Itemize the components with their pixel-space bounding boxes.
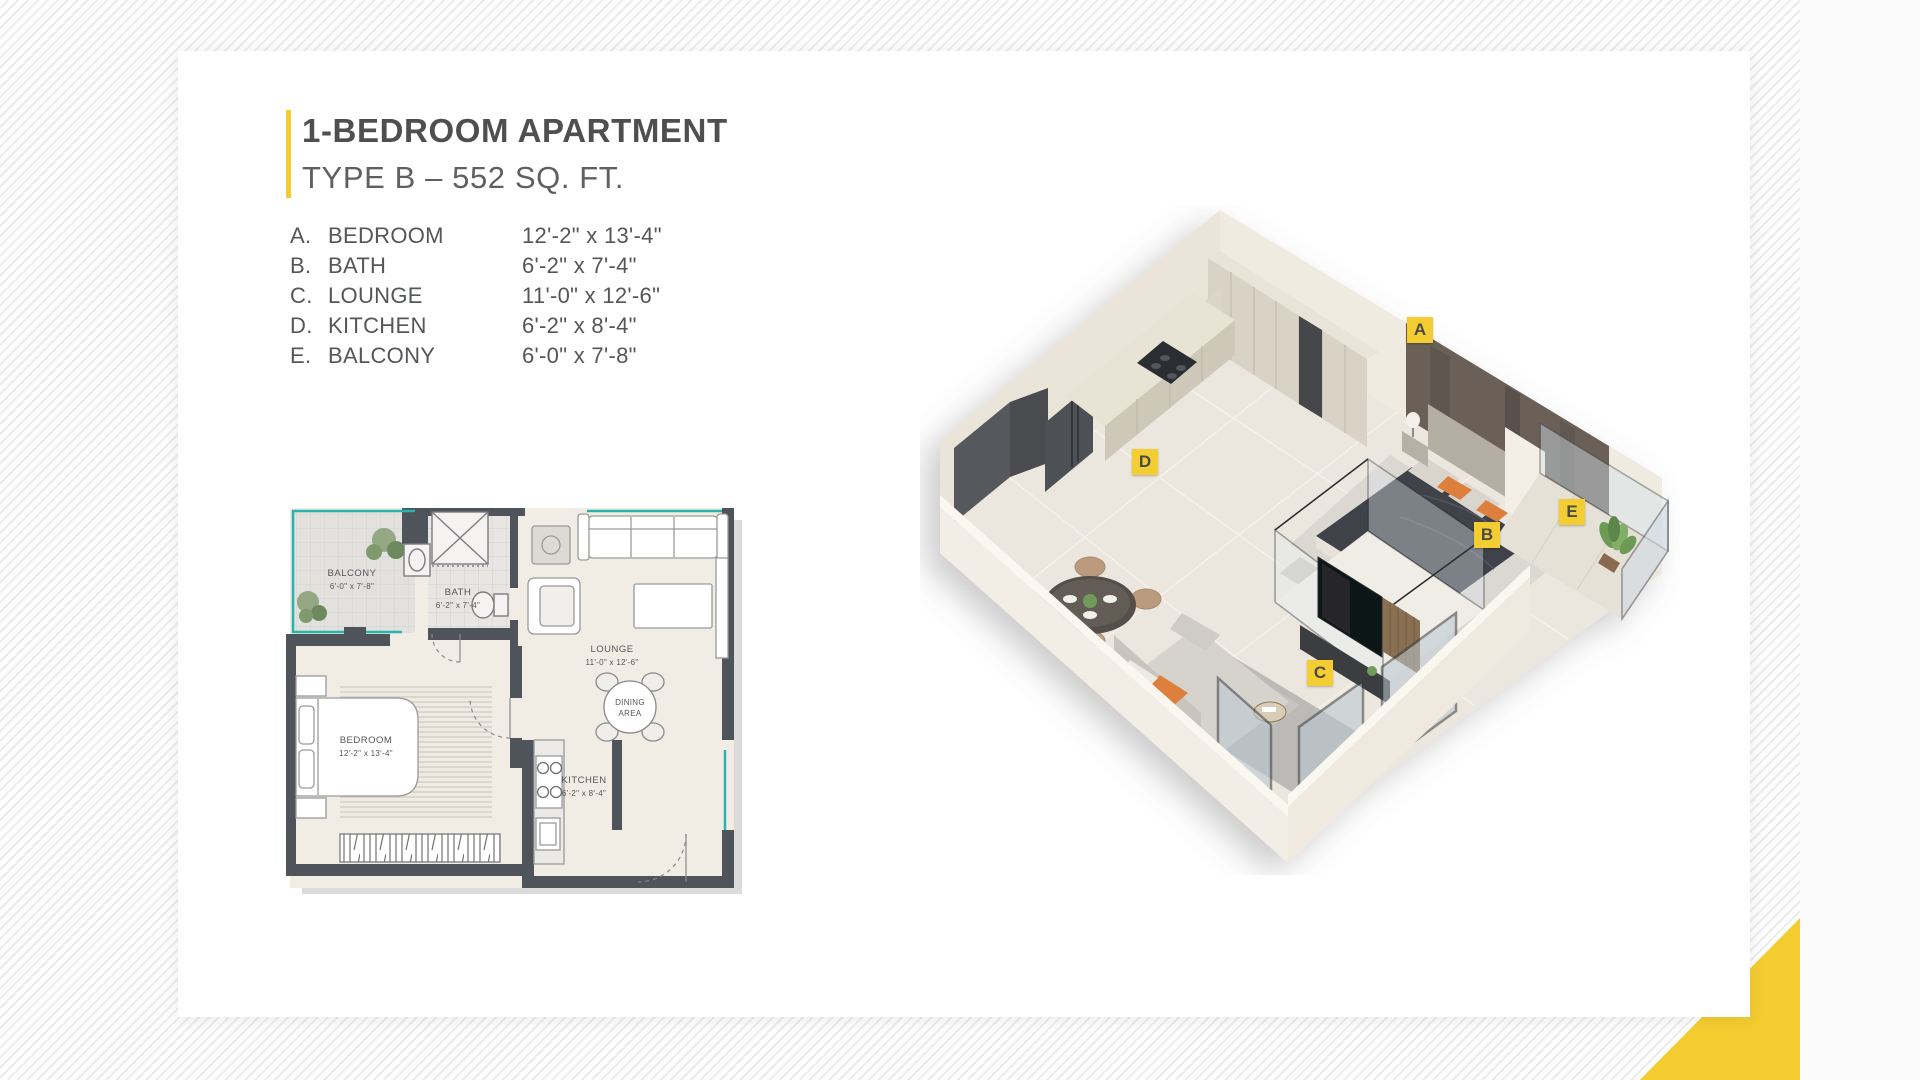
legend-row-bath: B. BATH 6'-2" x 7'-4" [290, 251, 752, 281]
legend-name: BATH [328, 253, 522, 279]
legend-name: BEDROOM [328, 223, 522, 249]
dining-table-2d [604, 681, 656, 733]
wardrobe-mirror [1299, 316, 1322, 418]
balcony-label: BALCONY [328, 568, 377, 579]
legend-dims: 6'-2" x 8'-4" [522, 313, 752, 339]
balcony-dims: 6'-0" x 7'-8" [330, 582, 374, 591]
legend-letter: C. [290, 283, 328, 309]
coffee-table-2d [634, 584, 712, 628]
decor-plant [1367, 666, 1377, 676]
plan2d-body: BALCONY 6'-0" x 7'-8" BATH 6'-2" x 7'-4"… [286, 508, 734, 888]
floorplan-3d-svg [920, 205, 1680, 875]
sink [409, 549, 425, 571]
wardrobe-hatch [340, 834, 500, 862]
marker-bath: B [1474, 522, 1500, 548]
legend-dims: 6'-2" x 7'-4" [522, 253, 752, 279]
legend-row-lounge: C. LOUNGE 11'-0" x 12'-6" [290, 281, 752, 311]
toilet-cistern [494, 594, 508, 616]
side-table-2d [532, 526, 570, 564]
books [1262, 707, 1276, 712]
page-title: 1-BEDROOM APARTMENT [302, 112, 728, 150]
legend-row-bedroom: A. BEDROOM 12'-2" x 13'-4" [290, 221, 752, 251]
tv-unit-2d [716, 558, 728, 658]
kitchen-2d [534, 740, 564, 864]
legend-dims: 12'-2" x 13'-4" [522, 223, 752, 249]
legend-letter: D. [290, 313, 328, 339]
legend-row-kitchen: D. KITCHEN 6'-2" x 8'-4" [290, 311, 752, 341]
floorplan-2d: BALCONY 6'-0" x 7'-8" BATH 6'-2" x 7'-4"… [282, 500, 742, 894]
right-margin [1800, 0, 1920, 1080]
legend-row-balcony: E. BALCONY 6'-0" x 7'-8" [290, 341, 752, 371]
bedroom-label: BEDROOM [340, 735, 393, 746]
balcony-door [344, 627, 366, 636]
nightstand-2d [296, 676, 326, 696]
legend-name: BALCONY [328, 343, 522, 369]
bath-label: BATH [445, 587, 472, 598]
marker-balcony: E [1559, 499, 1585, 525]
legend-letter: B. [290, 253, 328, 279]
legend-dims: 6'-0" x 7'-8" [522, 343, 752, 369]
legend-dims: 11'-0" x 12'-6" [522, 283, 752, 309]
dining-set-2d [596, 673, 664, 741]
legend-name: LOUNGE [328, 283, 522, 309]
lamp [1406, 412, 1420, 428]
title-accent-bar [286, 110, 291, 198]
marker-kitchen: D [1132, 449, 1158, 475]
dining-label-1: DINING [615, 698, 645, 707]
room-legend: A. BEDROOM 12'-2" x 13'-4" B. BATH 6'-2"… [290, 221, 752, 371]
bedroom-dims: 12'-2" x 13'-4" [339, 749, 393, 758]
lounge-label: LOUNGE [590, 644, 633, 655]
building-3d [940, 210, 1668, 863]
entrance-door-leaf [1010, 388, 1048, 477]
dining-label-2: AREA [619, 709, 642, 718]
brochure-page: 1-BEDROOM APARTMENT TYPE B – 552 SQ. FT.… [0, 0, 1920, 1080]
legend-letter: E. [290, 343, 328, 369]
kitchen-dims: 6'-2" x 8'-4" [562, 789, 606, 798]
bath-dims: 6'-2" x 7'-4" [436, 601, 480, 610]
sofa-2d [588, 516, 718, 558]
legend-name: KITCHEN [328, 313, 522, 339]
floorplan-2d-svg: BALCONY 6'-0" x 7'-8" BATH 6'-2" x 7'-4"… [282, 500, 742, 894]
lounge-dims: 11'-0" x 12'-6" [585, 658, 638, 667]
kitchen-label: KITCHEN [561, 775, 606, 786]
nightstand-2d [296, 798, 326, 818]
page-subtitle: TYPE B – 552 SQ. FT. [302, 160, 624, 196]
marker-bedroom: A [1407, 317, 1433, 343]
legend-letter: A. [290, 223, 328, 249]
floorplan-3d: A B C D E [920, 205, 1680, 875]
marker-lounge: C [1307, 660, 1333, 686]
